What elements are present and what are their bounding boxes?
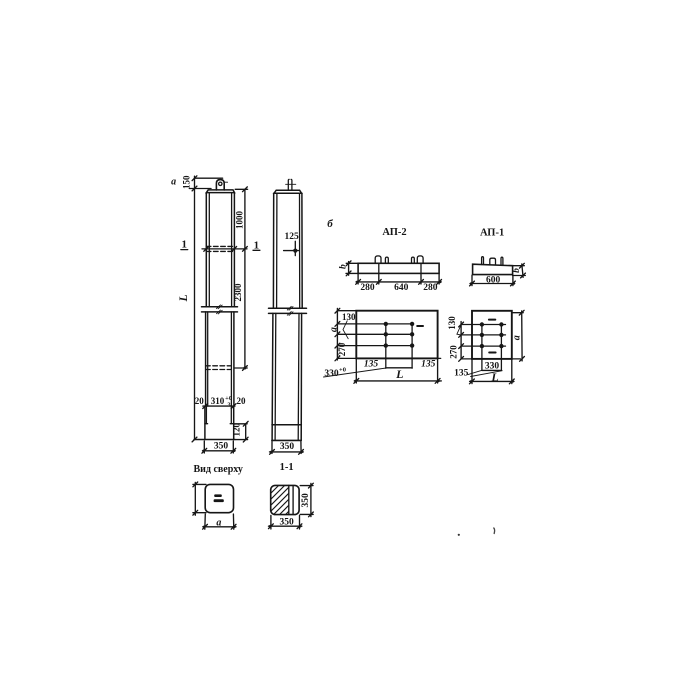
svg-text:640: 640 <box>394 283 409 293</box>
svg-text:270: 270 <box>337 342 347 356</box>
svg-text:1000: 1000 <box>234 211 244 230</box>
svg-text:20: 20 <box>195 396 205 406</box>
svg-text:350: 350 <box>279 518 294 528</box>
svg-text:1: 1 <box>254 239 260 251</box>
svg-text:L: L <box>178 294 190 302</box>
svg-text:135: 135 <box>421 360 436 370</box>
svg-text:+0: +0 <box>339 367 346 374</box>
svg-text:L: L <box>490 370 498 384</box>
svg-text:1: 1 <box>181 239 187 251</box>
svg-text:б: б <box>327 218 333 230</box>
svg-text:135: 135 <box>454 369 469 379</box>
svg-text:Вид сверху: Вид сверху <box>193 464 242 475</box>
svg-text:a: a <box>216 518 221 529</box>
svg-text:a: a <box>512 335 523 340</box>
svg-text:20: 20 <box>237 396 247 406</box>
svg-text:130: 130 <box>342 312 356 322</box>
svg-text:150: 150 <box>181 175 191 189</box>
svg-text:АП-2: АП-2 <box>382 227 406 238</box>
svg-text:280: 280 <box>423 283 438 293</box>
svg-text:350: 350 <box>301 493 311 508</box>
svg-text:130: 130 <box>447 316 457 330</box>
svg-text:600: 600 <box>486 275 501 285</box>
svg-text:350: 350 <box>214 441 229 451</box>
svg-text:АП-1: АП-1 <box>480 227 504 238</box>
svg-text:270: 270 <box>448 345 458 359</box>
svg-text:L: L <box>395 367 403 381</box>
svg-text:a: a <box>329 327 340 332</box>
svg-text:120: 120 <box>231 423 241 437</box>
svg-text:1-1: 1-1 <box>280 462 294 473</box>
svg-text:135: 135 <box>364 360 379 370</box>
svg-text:125: 125 <box>284 232 299 242</box>
svg-text:350: 350 <box>280 442 295 452</box>
svg-text:280: 280 <box>360 283 375 293</box>
svg-text:330: 330 <box>324 369 339 379</box>
svg-text:b: b <box>512 268 522 273</box>
svg-text:b: b <box>338 264 348 269</box>
svg-text:310: 310 <box>211 396 225 406</box>
svg-text:a: a <box>171 177 176 188</box>
svg-text:2300: 2300 <box>233 283 243 302</box>
